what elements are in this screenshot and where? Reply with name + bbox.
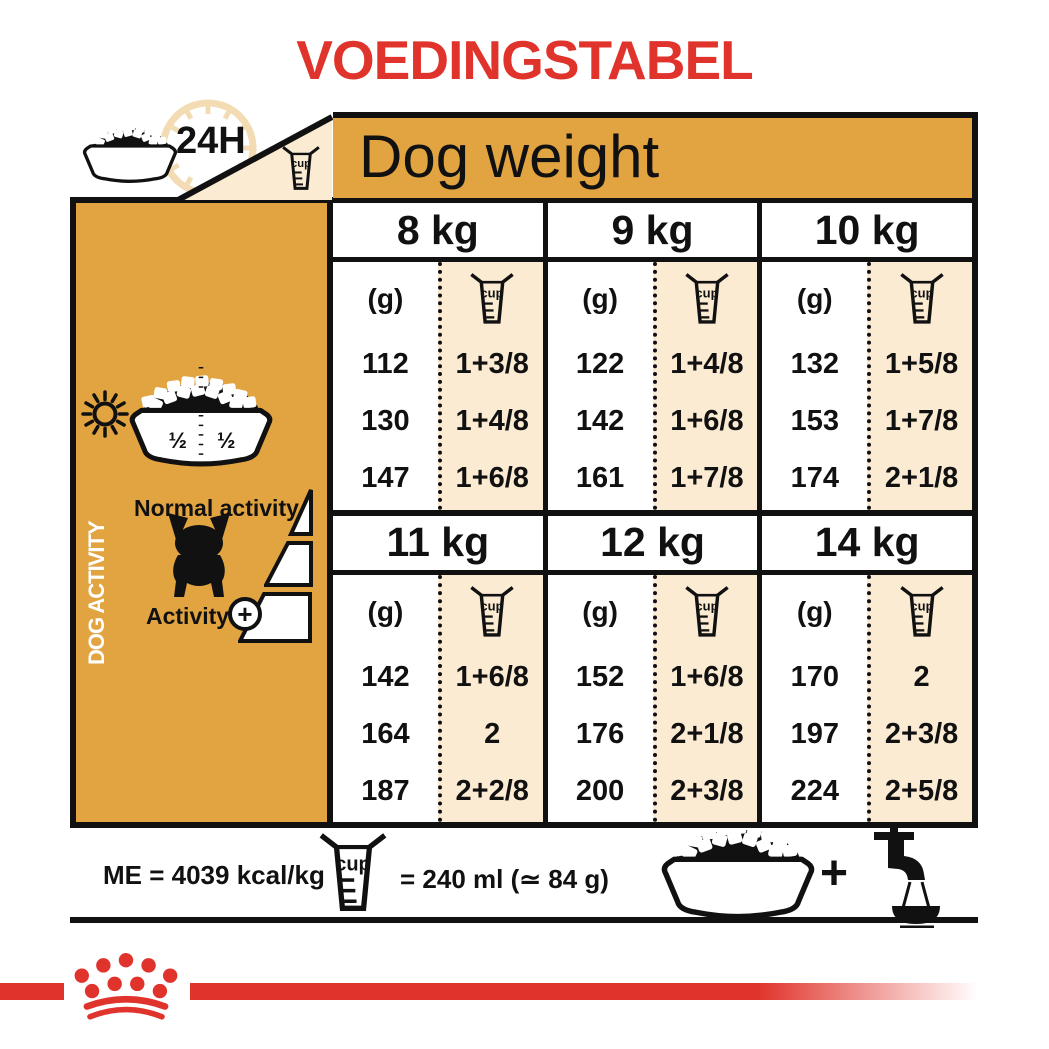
grams-value: 132 xyxy=(762,336,867,393)
activity-label: Activity xyxy=(146,603,229,630)
grams-header: (g) xyxy=(797,283,833,315)
grams-value: 152 xyxy=(548,649,653,706)
weight-group-2: 11 kg (g) 142 164 187 1+6/8 2 2+2/8 xyxy=(333,516,972,823)
cup-icon xyxy=(684,273,730,325)
cup-value: 1+4/8 xyxy=(442,393,543,450)
brand-band-left xyxy=(0,983,64,1000)
column-10kg: 10 kg (g) 132 153 174 1+5/8 1+7/8 2+1/8 xyxy=(757,203,972,510)
cups-subcolumn: 1+6/8 2 2+2/8 xyxy=(438,575,543,823)
grams-header: (g) xyxy=(582,596,618,628)
cup-value: 1+7/8 xyxy=(657,450,758,507)
kg-header: 12 kg xyxy=(548,516,758,575)
dog-weight-header: Dog weight xyxy=(333,112,978,198)
cup-value: 1+6/8 xyxy=(442,649,543,706)
weight-group-1: 8 kg (g) 112 130 147 1+3/8 1+4/8 1+6/8 xyxy=(333,203,972,516)
grams-subcolumn: (g) 142 164 187 xyxy=(333,575,438,823)
grams-value: 142 xyxy=(548,393,653,450)
half-right-label: ½ xyxy=(217,428,236,453)
cup-icon xyxy=(899,586,945,638)
column-12kg: 12 kg (g) 152 176 200 1+6/8 2+1/8 2+3/8 xyxy=(543,516,758,823)
grams-value: 164 xyxy=(333,706,438,763)
food-bowl-icon xyxy=(80,128,180,184)
kg-header: 9 kg xyxy=(548,203,758,262)
cup-value: 2+3/8 xyxy=(657,763,758,820)
cup-value: 2+1/8 xyxy=(657,706,758,763)
grams-value: 176 xyxy=(548,706,653,763)
activity-step-2-icon xyxy=(264,541,314,588)
cup-value: 1+6/8 xyxy=(657,393,758,450)
column-9kg: 9 kg (g) 122 142 161 1+4/8 1+6/8 1+7/8 xyxy=(543,203,758,510)
cups-subcolumn: 1+5/8 1+7/8 2+1/8 xyxy=(867,262,972,510)
cup-equivalence-label: = 240 ml (≃ 84 g) xyxy=(400,864,609,895)
cups-subcolumn: 1+4/8 1+6/8 1+7/8 xyxy=(653,262,758,510)
grams-value: 112 xyxy=(333,336,438,393)
bulldog-icon xyxy=(162,511,236,601)
grams-subcolumn: (g) 170 197 224 xyxy=(762,575,867,823)
column-11kg: 11 kg (g) 142 164 187 1+6/8 2 2+2/8 xyxy=(333,516,543,823)
grams-value: 170 xyxy=(762,649,867,706)
brand-band-right xyxy=(190,983,978,1000)
activity-plus-icon: + xyxy=(228,597,262,631)
cup-value: 1+6/8 xyxy=(442,450,543,507)
grams-subcolumn: (g) 112 130 147 xyxy=(333,262,438,510)
grams-value: 187 xyxy=(333,763,438,820)
grams-subcolumn: (g) 152 176 200 xyxy=(548,575,653,823)
moon-icon xyxy=(276,387,316,427)
cups-subcolumn: 1+6/8 2+1/8 2+3/8 xyxy=(653,575,758,823)
grams-value: 153 xyxy=(762,393,867,450)
dog-activity-label: DOG ACTIVITY xyxy=(84,475,110,665)
royal-canin-crown-logo xyxy=(60,952,194,1026)
feeding-table-panel: cup VOEDINGSTABEL 24H Dog weight xyxy=(0,0,1049,1049)
grams-value: 142 xyxy=(333,649,438,706)
cups-subcolumn: 1+3/8 1+4/8 1+6/8 xyxy=(438,262,543,510)
grams-value: 161 xyxy=(548,450,653,507)
cups-subcolumn: 2 2+3/8 2+5/8 xyxy=(867,575,972,823)
grams-header: (g) xyxy=(368,596,404,628)
cup-value: 1+3/8 xyxy=(442,336,543,393)
kg-header: 14 kg xyxy=(762,516,972,575)
water-tap-icon xyxy=(858,824,942,928)
sun-icon xyxy=(80,389,130,439)
kg-header: 8 kg xyxy=(333,203,543,262)
half-bowl-icon: ½ ½ xyxy=(125,365,277,468)
column-14kg: 14 kg (g) 170 197 224 2 2+3/8 2+5/8 xyxy=(757,516,972,823)
activity-step-1-icon xyxy=(288,487,314,537)
grams-value: 224 xyxy=(762,763,867,820)
24h-label: 24H xyxy=(176,120,246,163)
grams-value: 197 xyxy=(762,706,867,763)
cup-value: 2+1/8 xyxy=(871,450,972,507)
grams-subcolumn: (g) 122 142 161 xyxy=(548,262,653,510)
cup-icon xyxy=(899,273,945,325)
half-left-label: ½ xyxy=(169,428,188,453)
grams-value: 174 xyxy=(762,450,867,507)
kg-header: 10 kg xyxy=(762,203,972,262)
page-title: VOEDINGSTABEL xyxy=(0,28,1049,92)
cup-value: 1+5/8 xyxy=(871,336,972,393)
cup-value: 2 xyxy=(442,706,543,763)
grams-header: (g) xyxy=(582,283,618,315)
grams-value: 147 xyxy=(333,450,438,507)
cup-value: 2+2/8 xyxy=(442,763,543,820)
dog-weight-grid: 8 kg (g) 112 130 147 1+3/8 1+4/8 1+6/8 xyxy=(333,203,978,828)
cup-value: 1+7/8 xyxy=(871,393,972,450)
food-bowl-icon xyxy=(657,830,819,921)
cup-value: 2 xyxy=(871,649,972,706)
grams-value: 130 xyxy=(333,393,438,450)
cup-value: 2+3/8 xyxy=(871,706,972,763)
cup-icon xyxy=(684,586,730,638)
plus-label: + xyxy=(820,846,848,901)
table-bottom-border xyxy=(70,917,978,923)
grams-value: 122 xyxy=(548,336,653,393)
kg-header: 11 kg xyxy=(333,516,543,575)
cup-icon xyxy=(469,586,515,638)
metabolizable-energy-label: ME = 4039 kcal/kg xyxy=(103,860,325,891)
grams-subcolumn: (g) 132 153 174 xyxy=(762,262,867,510)
cup-icon xyxy=(317,833,389,913)
column-8kg: 8 kg (g) 112 130 147 1+3/8 1+4/8 1+6/8 xyxy=(333,203,543,510)
cup-value: 2+5/8 xyxy=(871,763,972,820)
grams-header: (g) xyxy=(368,283,404,315)
cup-icon xyxy=(281,146,321,191)
cup-value: 1+6/8 xyxy=(657,649,758,706)
cup-value: 1+4/8 xyxy=(657,336,758,393)
dog-weight-label: Dog weight xyxy=(333,118,972,196)
dog-activity-sidebar: ½ ½ DOG ACTIVITY Normal activity Activit… xyxy=(70,203,333,828)
cup-icon xyxy=(469,273,515,325)
plus-label: + xyxy=(237,601,252,627)
grams-value: 200 xyxy=(548,763,653,820)
grams-header: (g) xyxy=(797,596,833,628)
